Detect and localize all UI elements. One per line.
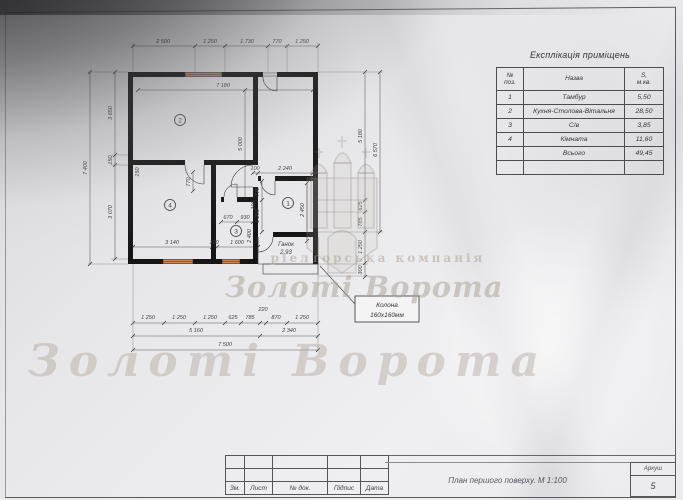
dimension-label: 7 180 — [216, 83, 231, 89]
col-header-num: № поз. — [497, 68, 524, 91]
dimension-label: 1 600 — [230, 240, 245, 246]
room-number-2: 2 — [178, 117, 182, 124]
callout-line2: 160х160мм — [370, 312, 404, 319]
revision-empty-row — [226, 456, 389, 469]
dimension-label: 5 160 — [189, 328, 204, 334]
dimension-label: 3 650 — [108, 105, 114, 120]
explication-table: Експлікація приміщень № поз. Назва S, м.… — [496, 50, 664, 175]
dimension-label: 1 250 — [358, 239, 364, 254]
dimension-label: 5 180 — [358, 128, 364, 143]
dimension-label: 2 240 — [277, 166, 293, 172]
dimension-label: 1 250 — [203, 315, 218, 321]
dimension-label: 1 250 — [172, 315, 187, 321]
dimension-label: 1 250 — [141, 315, 156, 321]
dimension-label: 870 — [271, 315, 281, 321]
windows — [163, 73, 240, 264]
dimension-label: 150 — [108, 154, 114, 164]
dimension-label: 785 — [245, 315, 255, 321]
dimension-label: 1 250 — [295, 315, 310, 321]
revision-table: Зм. Лист № док. Підпис Дата — [225, 455, 389, 495]
col-sign: Підпис — [328, 482, 361, 495]
sheet-number: 5 — [631, 476, 675, 497]
sheet-number-box: Аркуш 5 — [630, 462, 676, 497]
col-list: Лист — [245, 482, 273, 495]
dimension-label: 100 — [251, 199, 257, 209]
sheet-frame-left — [5, 12, 6, 497]
titleblock-columns-row: Зм. Лист № док. Підпис Дата — [226, 482, 389, 495]
dimension-label: 770 — [186, 176, 192, 186]
dimension-label: 2 340 — [281, 328, 297, 334]
floor-plan: 2 1 3 4 Ганок 2,93 Колона 160х160мм 2 50… — [55, 20, 445, 370]
explication-title: Експлікація приміщень — [496, 50, 664, 60]
dimension-label: 2 500 — [155, 39, 171, 45]
dimension-label: 150 — [135, 166, 141, 176]
col-doc: № док. — [273, 482, 328, 495]
room-number-4: 4 — [168, 202, 172, 209]
table-row: Всього49,45 — [497, 147, 664, 161]
dimension-label: 670 — [223, 215, 233, 221]
table-row — [497, 161, 664, 175]
dimension-lines — [90, 46, 380, 350]
col-header-name: Назва — [524, 68, 625, 91]
sheet-label: Аркуш — [631, 463, 675, 476]
table-row: 2Кухня-Столова-Вітальня28,50 — [497, 105, 664, 119]
dimension-label: 100 — [250, 166, 260, 172]
col-zm: Зм. — [226, 482, 245, 495]
bathroom-door-arc — [224, 184, 237, 197]
porch-label: Ганок — [278, 242, 295, 248]
porch-area: 2,93 — [279, 250, 292, 256]
entrance-door-arc — [263, 77, 277, 91]
revision-empty-row — [226, 469, 389, 482]
porch-door-arc — [258, 237, 273, 252]
dimension-label: 625 — [358, 200, 364, 210]
dimension-label: 770 — [272, 39, 282, 45]
callout-line1: Колона — [376, 302, 398, 309]
dimension-label: 300 — [358, 264, 364, 274]
dimension-label: 7 500 — [218, 342, 233, 348]
dimension-label: 770 — [255, 186, 261, 196]
table-header-row: № поз. Назва S, м.кв. — [497, 68, 664, 91]
dimension-label: 3 070 — [108, 204, 114, 219]
table-row: 1Тамбур5,50 — [497, 91, 664, 105]
dimension-label: 625 — [228, 315, 238, 321]
col-header-area: S, м.кв. — [625, 68, 664, 91]
sheet-frame-top — [5, 7, 676, 13]
dimension-label: 2 450 — [300, 202, 306, 218]
drawing-title: План першого поверху. М 1:100 — [385, 462, 630, 498]
room-number-3: 3 — [234, 228, 238, 235]
table-row: 4Кімната11,60 — [497, 133, 664, 147]
dimension-label: 220 — [257, 307, 268, 313]
explication-body: 1Тамбур5,502Кухня-Столова-Вітальня28,503… — [497, 91, 664, 175]
dimension-label: 930 — [240, 215, 250, 221]
column-callout: Колона 160х160мм — [320, 266, 419, 322]
room-number-1: 1 — [286, 200, 290, 207]
sheet-frame-right — [675, 7, 676, 498]
dimension-label: 3 140 — [165, 240, 180, 246]
dimension-label: 5 000 — [238, 136, 244, 151]
dimension-label: 7 400 — [83, 160, 89, 175]
dimension-label: 2 400 — [247, 228, 253, 244]
dimension-label: 1 730 — [240, 39, 255, 45]
tambour-door-arc — [261, 181, 275, 195]
title-block: Зм. Лист № док. Підпис Дата План першого… — [225, 455, 676, 497]
dimension-label: 100 — [209, 240, 219, 246]
dimension-label: 785 — [358, 216, 364, 226]
table-row: 3С/в3,85 — [497, 119, 664, 133]
dimension-label: 6 570 — [373, 142, 379, 157]
dimension-labels: 2 5001 2501 7307701 2507 1807 4003 65015… — [83, 39, 379, 348]
dimension-label: 1 250 — [295, 39, 310, 45]
dimension-label: 1 250 — [203, 39, 218, 45]
